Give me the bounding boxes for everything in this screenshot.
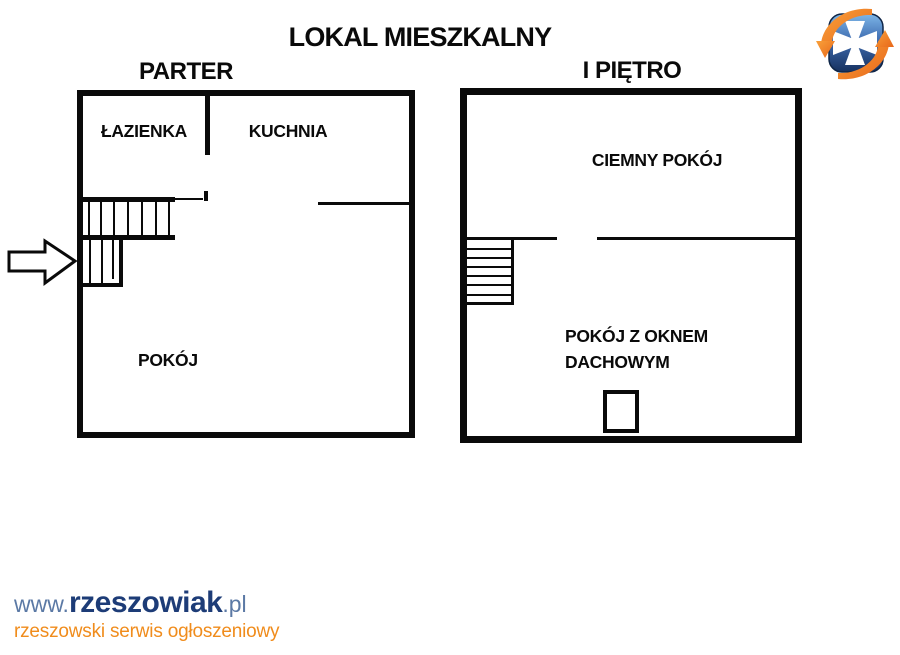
pietro-plan: CIEMNY POKÓJ POKÓJ Z OKNEM DACHOWYM <box>460 88 802 443</box>
stair-tread <box>467 284 514 286</box>
rzeszowiak-logo <box>813 4 897 84</box>
stair-wall-extension <box>175 198 203 200</box>
stair-tread <box>467 275 514 277</box>
pietro-interior-wall-right <box>597 237 795 240</box>
stair-riser <box>88 202 90 236</box>
stair-riser <box>89 240 91 283</box>
room-label-kuchnia: KUCHNIA <box>228 121 348 142</box>
floorplan-image: LOKAL MIESZKALNY PARTER I PIĘTRO ŁAZIENK… <box>0 0 900 655</box>
watermark-url: www.rzeszowiak.pl <box>14 588 279 618</box>
stair-tread <box>467 257 514 259</box>
stair-tread <box>467 266 514 268</box>
floor-title-pietro: I PIĘTRO <box>532 57 732 85</box>
floor-title-parter: PARTER <box>86 58 286 86</box>
stair-wall-bottom <box>83 235 175 240</box>
stair-tread <box>467 248 514 250</box>
stair-riser <box>112 240 114 279</box>
stair-riser <box>141 202 143 236</box>
room-label-lazienka: ŁAZIENKA <box>83 121 205 142</box>
parter-divider-wall-stub <box>204 191 208 201</box>
watermark: www.rzeszowiak.pl rzeszowski serwis ogło… <box>14 588 279 641</box>
watermark-tld: .pl <box>222 591 246 617</box>
stair-wall-right <box>119 240 123 283</box>
stair-riser <box>101 240 103 287</box>
parter-divider-wall <box>205 96 210 155</box>
watermark-tagline: rzeszowski serwis ogłoszeniowy <box>14 622 279 641</box>
entrance-arrow-icon <box>6 238 78 286</box>
room-label-pokoj-z-oknem: POKÓJ Z OKNEM <box>565 326 708 347</box>
stair-tread <box>467 294 514 296</box>
watermark-www: www. <box>14 591 69 617</box>
watermark-brand: rzeszowiak <box>69 586 222 619</box>
stair-wall-top <box>83 197 175 202</box>
room-label-ciemny-pokoj: CIEMNY POKÓJ <box>537 150 777 171</box>
stair-riser <box>113 202 115 236</box>
stair-wall-bottom <box>83 283 123 287</box>
parter-plan: ŁAZIENKA KUCHNIA POKÓJ <box>77 90 415 438</box>
page-title: LOKAL MIESZKALNY <box>255 22 585 53</box>
roof-window <box>603 390 639 433</box>
room-label-pokoj: POKÓJ <box>138 350 198 371</box>
stair-wall-bottom <box>467 302 514 305</box>
stair-riser <box>100 202 102 236</box>
parter-interior-wall <box>318 202 412 205</box>
room-label-dachowym: DACHOWYM <box>565 352 670 373</box>
